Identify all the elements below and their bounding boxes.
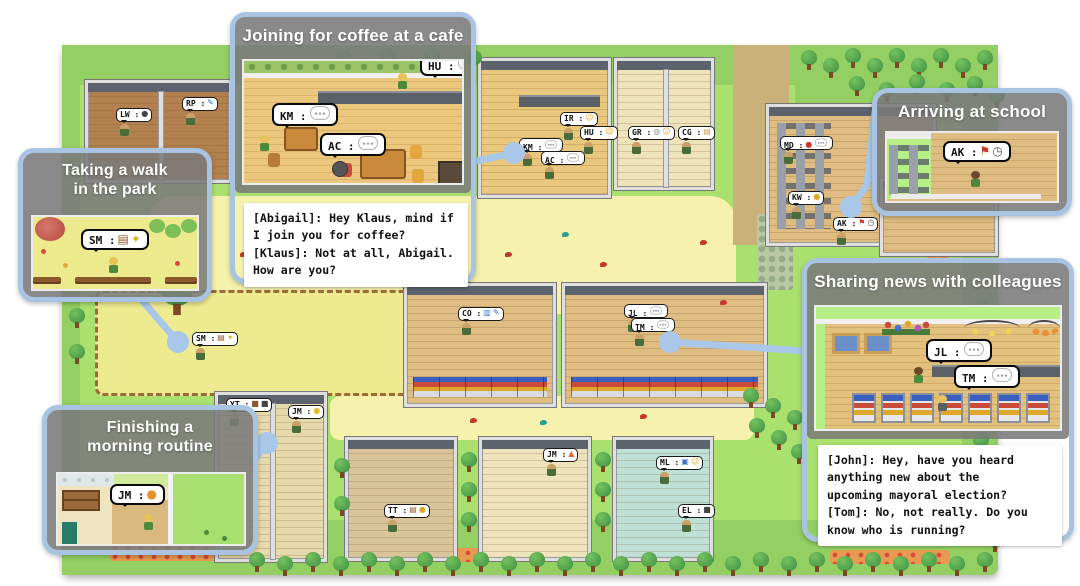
tree bbox=[822, 58, 840, 79]
smiley-icon: ☺ bbox=[691, 457, 699, 466]
bubble-tail bbox=[546, 163, 552, 169]
chair-yellow bbox=[410, 145, 422, 159]
bush bbox=[165, 224, 181, 238]
tree bbox=[976, 552, 994, 573]
tree bbox=[472, 552, 490, 573]
school-scene: AK :⚑◷ bbox=[885, 131, 1059, 203]
chat-icon bbox=[545, 140, 557, 148]
bubble-tail bbox=[585, 138, 591, 144]
shelf bbox=[997, 393, 1021, 423]
shelf bbox=[1026, 393, 1050, 423]
tree bbox=[640, 552, 658, 573]
tree bbox=[276, 556, 294, 577]
roof bbox=[617, 61, 711, 70]
outside-grass bbox=[816, 307, 1060, 319]
tree bbox=[460, 452, 478, 473]
bubble-tail bbox=[683, 138, 689, 144]
map-speech-bubble: SM :▤✦ bbox=[192, 332, 238, 346]
building-house2 bbox=[614, 58, 714, 190]
map-speech-bubble: AK :⚑◷ bbox=[833, 217, 878, 231]
bird bbox=[640, 414, 647, 419]
callout-taking-a-walk: Taking a walk in the park SM :▤✦ bbox=[18, 148, 212, 302]
flower bbox=[41, 249, 46, 254]
tree bbox=[864, 552, 882, 573]
tree bbox=[68, 344, 86, 365]
store-wall bbox=[816, 319, 1060, 324]
hanging-lights bbox=[964, 320, 1020, 336]
tree bbox=[696, 552, 714, 573]
agent-sprite bbox=[142, 514, 155, 531]
midwall bbox=[271, 404, 275, 559]
park bbox=[95, 290, 425, 396]
callout-title: Finishing a morning routine bbox=[47, 410, 253, 457]
tree bbox=[844, 48, 862, 69]
bird bbox=[562, 232, 569, 237]
desk-rows bbox=[889, 145, 929, 195]
wall-tiles bbox=[58, 474, 114, 486]
coin-icon: ● bbox=[813, 192, 820, 201]
bubble-label: JM : bbox=[292, 407, 311, 416]
yard-plant bbox=[222, 536, 227, 541]
bubble-label: GR : bbox=[632, 128, 651, 137]
bubble-tail bbox=[661, 468, 667, 474]
bird bbox=[720, 300, 727, 305]
bird bbox=[505, 252, 512, 257]
bubble-label: JM : bbox=[547, 450, 566, 459]
bubble-tail bbox=[463, 319, 469, 325]
callout-arriving-school: Arriving at school AK :⚑◷ bbox=[872, 88, 1072, 216]
pan-icon: ● bbox=[141, 109, 148, 118]
speech-bubble-tm: TM : bbox=[954, 365, 1020, 388]
map-speech-bubble: EL :■ bbox=[678, 504, 715, 518]
agent-sprite bbox=[258, 135, 271, 152]
counter bbox=[519, 95, 600, 107]
bubble-label: IR : bbox=[564, 114, 583, 123]
tree bbox=[594, 482, 612, 503]
tree bbox=[584, 552, 602, 573]
bush bbox=[181, 219, 197, 233]
map-speech-bubble: AC : bbox=[541, 151, 585, 165]
shelves bbox=[571, 377, 758, 397]
pen-icon: ✎ bbox=[493, 308, 500, 317]
callout-title: Joining for coffee at a cafe bbox=[235, 17, 471, 46]
map-speech-bubble: CO :▥✎ bbox=[458, 307, 504, 321]
shelves bbox=[413, 377, 547, 397]
note-icon: ▤ bbox=[703, 127, 711, 136]
red-tree bbox=[35, 217, 65, 241]
speech-bubble-hu: HU : bbox=[420, 59, 464, 76]
map-speech-bubble: JM :▲ bbox=[543, 448, 578, 462]
sparkle-icon: ✦ bbox=[227, 333, 234, 342]
bubble-label: LW : bbox=[120, 110, 139, 119]
tree bbox=[333, 496, 351, 517]
map-speech-bubble: GR :◍☺ bbox=[628, 126, 675, 140]
tree bbox=[612, 556, 630, 577]
tree bbox=[742, 388, 760, 409]
callout-joining-coffee: Joining for coffee at a cafe KM : AC : H… bbox=[230, 12, 476, 284]
dialogue-box: [John]: Hey, have you heard anything new… bbox=[818, 445, 1062, 546]
bubble-tail bbox=[121, 120, 127, 126]
bubble-tail bbox=[683, 516, 689, 522]
tree bbox=[932, 48, 950, 69]
tree bbox=[748, 418, 766, 439]
bubble-label: RP : bbox=[186, 99, 205, 108]
callout-morning-routine: Finishing a morning routine JM :● bbox=[42, 405, 258, 555]
map-speech-bubble: JM :● bbox=[288, 405, 324, 419]
tree bbox=[332, 556, 350, 577]
chat-icon bbox=[992, 368, 1012, 382]
dark-icon: ■ bbox=[261, 399, 269, 408]
outside-grass bbox=[816, 324, 825, 431]
tree bbox=[388, 556, 406, 577]
figure-canvas: LW :●RP :✎IR :☺HU :☺KM :AC :GR :◍☺CG :▤M… bbox=[0, 0, 1080, 586]
map-speech-bubble: KW :● bbox=[788, 191, 824, 205]
roof bbox=[481, 61, 608, 70]
tree bbox=[892, 556, 910, 577]
smiley-icon: ☺ bbox=[662, 127, 670, 136]
tree bbox=[848, 76, 866, 97]
roof bbox=[565, 286, 764, 295]
agent-sprite bbox=[936, 395, 949, 412]
tree bbox=[948, 556, 966, 577]
tree bbox=[836, 556, 854, 577]
tree bbox=[460, 482, 478, 503]
chat-icon bbox=[567, 153, 579, 161]
hanging-lights bbox=[1028, 320, 1060, 336]
callout-title: Arriving at school bbox=[877, 93, 1067, 122]
bubble-tail bbox=[293, 417, 299, 423]
bubble-label: SM : bbox=[196, 334, 215, 343]
map-speech-bubble: LW :● bbox=[116, 108, 152, 122]
tree bbox=[500, 556, 518, 577]
bubble-label: EL : bbox=[682, 506, 701, 515]
bird bbox=[600, 262, 607, 267]
roof bbox=[407, 286, 553, 295]
sparkle-icon: ✦ bbox=[131, 232, 141, 246]
fence bbox=[75, 277, 151, 284]
framed-picture bbox=[832, 333, 860, 354]
cafe-counter bbox=[318, 91, 464, 104]
bubble-label: CG : bbox=[682, 128, 701, 137]
shelf bbox=[968, 393, 992, 423]
dark-icon: ■ bbox=[703, 505, 711, 514]
bubble-tail bbox=[565, 124, 571, 130]
bubble-label: KW : bbox=[792, 193, 811, 202]
dish-icon: ◍ bbox=[653, 127, 660, 136]
floor-band bbox=[891, 194, 1041, 199]
callout-panel: Joining for coffee at a cafe KM : AC : H… bbox=[235, 17, 471, 193]
bubble-tail bbox=[633, 138, 639, 144]
yard bbox=[172, 474, 246, 546]
bubble-tail bbox=[187, 109, 193, 115]
bell-icon: ● bbox=[313, 406, 320, 415]
pen-icon: ✎ bbox=[207, 98, 214, 107]
park-scene: SM :▤✦ bbox=[31, 215, 199, 291]
tree bbox=[528, 552, 546, 573]
tree bbox=[460, 512, 478, 533]
building-house bbox=[345, 437, 457, 561]
yard-plant bbox=[204, 530, 209, 535]
bubble-label: TT : bbox=[388, 506, 407, 515]
book-icon: ▤ bbox=[409, 505, 417, 514]
barista-sprite bbox=[396, 73, 409, 90]
callout-panel: Sharing news with colleagues bbox=[807, 263, 1069, 439]
tree bbox=[770, 430, 788, 451]
flower bbox=[175, 261, 180, 266]
shelf bbox=[852, 393, 876, 423]
chat-icon bbox=[650, 306, 662, 314]
map-speech-bubble: JL : bbox=[624, 304, 668, 318]
tree bbox=[594, 452, 612, 473]
bubble-tail bbox=[197, 344, 203, 350]
speech-bubble-jm: JM :● bbox=[110, 484, 165, 505]
tree bbox=[304, 552, 322, 573]
bubble-label: CO : bbox=[462, 309, 481, 318]
plant bbox=[62, 522, 77, 544]
speech-bubble-ac: AC : bbox=[320, 133, 386, 156]
map-speech-bubble: TT :▤● bbox=[384, 504, 430, 518]
bubble-tail bbox=[793, 203, 799, 209]
smiley-icon: ☺ bbox=[585, 113, 593, 122]
bird bbox=[470, 418, 477, 423]
shield-icon: ▣ bbox=[681, 457, 689, 466]
piano bbox=[438, 161, 464, 185]
cafe-scene: KM : AC : HU : bbox=[242, 59, 464, 185]
bird bbox=[700, 240, 707, 245]
tree bbox=[752, 552, 770, 573]
flower bbox=[63, 263, 68, 268]
coin-icon: ● bbox=[419, 505, 426, 514]
map-speech-bubble: CG :▤ bbox=[678, 126, 715, 140]
planks bbox=[348, 440, 454, 558]
bubble-tail bbox=[838, 229, 844, 235]
agent-sprite bbox=[969, 171, 982, 188]
tree bbox=[920, 552, 938, 573]
tree bbox=[594, 512, 612, 533]
shelf bbox=[910, 393, 934, 423]
speech-bubble-km: KM : bbox=[272, 103, 338, 126]
tree bbox=[556, 556, 574, 577]
agent-sprite bbox=[107, 257, 120, 274]
bubble-label: ML : bbox=[660, 458, 679, 467]
tree bbox=[764, 398, 782, 419]
map-speech-bubble: RP :✎ bbox=[182, 97, 218, 111]
house-wall bbox=[168, 474, 173, 546]
framed-picture bbox=[864, 333, 892, 354]
callout-title: Taking a walk in the park bbox=[23, 153, 207, 200]
tree bbox=[416, 552, 434, 573]
speech-bubble-sm: SM :▤✦ bbox=[81, 229, 149, 250]
book-icon: ▤ bbox=[217, 333, 225, 342]
tree bbox=[724, 556, 742, 577]
tree bbox=[248, 552, 266, 573]
chat-icon bbox=[657, 320, 669, 328]
chart-icon: ▥ bbox=[483, 308, 491, 317]
tree bbox=[976, 50, 994, 71]
tree bbox=[808, 552, 826, 573]
map-speech-bubble: KM : bbox=[519, 138, 563, 152]
dresser bbox=[62, 490, 100, 511]
bubble-tail bbox=[389, 516, 395, 522]
chat-icon bbox=[358, 136, 378, 150]
callout-sharing-news: Sharing news with colleagues bbox=[802, 258, 1074, 542]
bubble-label: AK : bbox=[837, 219, 856, 228]
map-speech-bubble: TM : bbox=[631, 318, 675, 332]
cat-icon: ● bbox=[147, 487, 157, 501]
tree bbox=[68, 308, 86, 329]
tree bbox=[668, 556, 686, 577]
store-scene: JL : TM : bbox=[814, 305, 1062, 431]
chat-icon bbox=[964, 342, 984, 356]
tree bbox=[888, 48, 906, 69]
chair-wood bbox=[268, 153, 280, 167]
dialogue-box: [Abigail]: Hey Klaus, mind if I join you… bbox=[244, 203, 468, 287]
speech-bubble-jl: JL : bbox=[926, 339, 992, 362]
bird bbox=[540, 420, 547, 425]
bubble-tail bbox=[636, 330, 642, 336]
map-speech-bubble: ML :▣☺ bbox=[656, 456, 703, 470]
callout-title: Sharing news with colleagues bbox=[807, 263, 1069, 292]
flower-display bbox=[882, 319, 930, 335]
flag-icon: ⚑ bbox=[858, 218, 865, 227]
chat-icon bbox=[310, 106, 330, 120]
roof bbox=[88, 83, 229, 92]
tree bbox=[333, 458, 351, 479]
tree bbox=[866, 58, 884, 79]
tree bbox=[360, 552, 378, 573]
tree bbox=[800, 50, 818, 71]
bubble-tail bbox=[548, 460, 554, 466]
building-store bbox=[562, 283, 767, 407]
book-icon: ▤ bbox=[118, 232, 129, 246]
apple-icon: ● bbox=[805, 140, 812, 149]
speech-bubble-ak: AK :⚑◷ bbox=[943, 141, 1011, 162]
building-store bbox=[404, 283, 556, 407]
smiley-icon: ☺ bbox=[605, 127, 613, 136]
bubble-tail bbox=[524, 150, 530, 156]
roof bbox=[348, 440, 454, 449]
bush bbox=[149, 219, 165, 233]
roof bbox=[616, 440, 710, 449]
clock-icon: ◷ bbox=[992, 144, 1002, 158]
chat-icon bbox=[815, 138, 827, 146]
flag-icon: ⚑ bbox=[980, 144, 991, 158]
map-speech-bubble: MD :● bbox=[780, 136, 833, 150]
clock-icon: ◷ bbox=[867, 218, 874, 227]
bubble-label: HU : bbox=[584, 128, 603, 137]
map-speech-bubble: HU :☺ bbox=[580, 126, 618, 140]
tree bbox=[444, 556, 462, 577]
chat-icon bbox=[458, 59, 465, 70]
house-scene: JM :● bbox=[56, 472, 246, 546]
fire-icon: ▲ bbox=[568, 449, 574, 458]
fence bbox=[33, 277, 61, 284]
bag-icon: ■ bbox=[251, 399, 259, 408]
agent-sprite bbox=[912, 367, 925, 384]
bubble-tail bbox=[785, 148, 791, 154]
chair-yellow bbox=[412, 169, 424, 183]
fence bbox=[165, 277, 197, 284]
shelf bbox=[881, 393, 905, 423]
tree bbox=[780, 556, 798, 577]
map-speech-bubble: IR :☺ bbox=[560, 112, 598, 126]
agent-sprite bbox=[332, 161, 348, 177]
